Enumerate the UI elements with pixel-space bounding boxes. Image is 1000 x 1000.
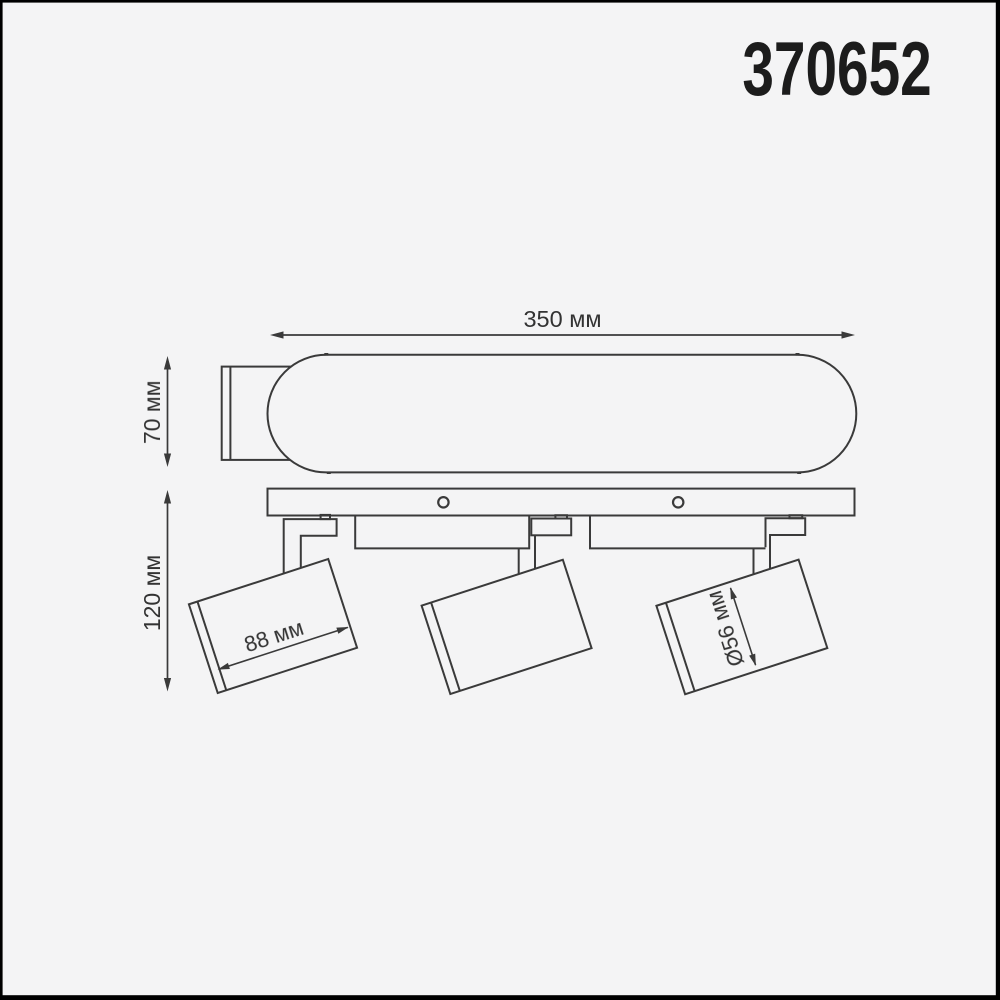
svg-text:70 мм: 70 мм bbox=[139, 380, 165, 444]
svg-text:120 мм: 120 мм bbox=[139, 555, 165, 631]
svg-text:370652: 370652 bbox=[742, 27, 931, 112]
svg-text:350 мм: 350 мм bbox=[523, 306, 601, 332]
